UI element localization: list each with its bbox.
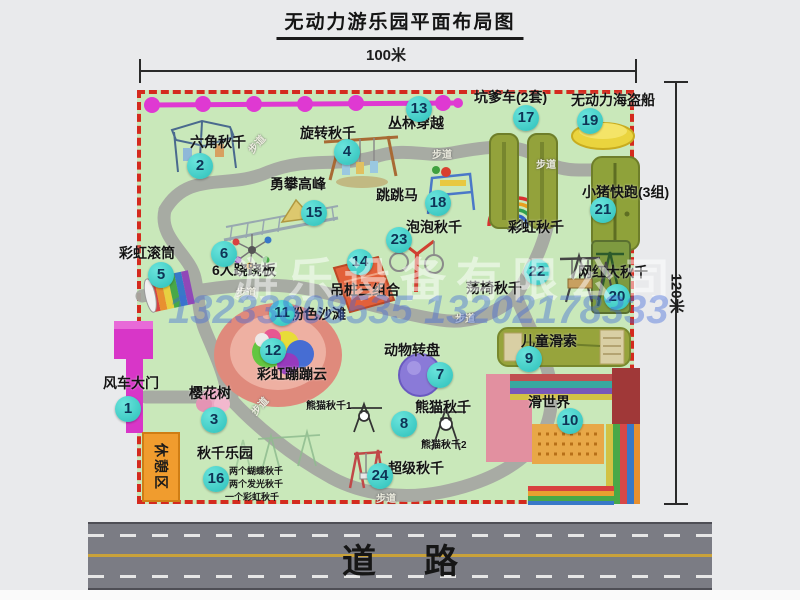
badge-10: 10	[557, 408, 583, 434]
footpath-label-3: 步道	[536, 156, 556, 171]
bottom-margin	[0, 590, 800, 600]
right-dimension-tick-bottom	[664, 503, 688, 505]
label-rainbow-swing: 彩虹秋千	[508, 220, 564, 235]
swing-paradise-note-2: 两个发光秋千	[229, 477, 283, 490]
label-slide-world: 滑世界	[528, 395, 570, 410]
road-label: 道路	[88, 534, 712, 583]
top-dimension-tick-right	[635, 59, 637, 83]
badge-17: 17	[513, 105, 539, 131]
badge-18: 18	[425, 190, 451, 216]
label-bumpy-car: 坑爹车(2套)	[474, 90, 547, 105]
top-dimension-line	[140, 70, 636, 72]
rest-area: 休憩区	[142, 432, 180, 502]
watermark-phone: 13233808535 13202178333	[168, 288, 669, 333]
label-super-swing: 超级秋千	[388, 461, 444, 476]
label-swing-paradise: 秋千乐园	[197, 446, 253, 461]
page-title: 无动力游乐园平面布局图	[276, 7, 523, 40]
badge-16: 16	[203, 466, 229, 492]
badge-21: 21	[590, 197, 616, 223]
badge-13: 13	[406, 96, 432, 122]
swing-paradise-note-1: 两个蝴蝶秋千	[229, 464, 283, 477]
badge-15: 15	[301, 200, 327, 226]
badge-1: 1	[115, 396, 141, 422]
label-pirate-ship: 无动力海盗船	[571, 93, 655, 108]
badge-4: 4	[334, 139, 360, 165]
label-jumping-horse: 跳跳马	[376, 188, 418, 203]
swing-paradise-note-3: 一个彩虹秋千	[225, 490, 279, 503]
label-panda-swing-1: 熊猫秋千1	[306, 401, 352, 412]
badge-8: 8	[391, 411, 417, 437]
label-bubble-swing: 泡泡秋千	[406, 220, 462, 235]
badge-24: 24	[367, 463, 393, 489]
label-rainbow-bounce-cloud: 彩虹蹦蹦云	[257, 367, 327, 382]
badge-3: 3	[201, 407, 227, 433]
label-panda-swing-2: 熊猫秋千2	[421, 440, 467, 451]
footpath-label-2: 步道	[432, 146, 452, 161]
label-cherry-tree: 樱花树	[189, 386, 231, 401]
badge-9: 9	[516, 346, 542, 372]
footpath-label-7: 步道	[376, 490, 396, 505]
top-dimension-tick-left	[139, 59, 141, 83]
road: 道路	[88, 522, 712, 590]
badge-7: 7	[427, 362, 453, 388]
badge-19: 19	[577, 108, 603, 134]
label-panda-swing: 熊猫秋千	[415, 400, 471, 415]
right-dimension-tick-top	[664, 81, 688, 83]
badge-12: 12	[260, 338, 286, 364]
badge-2: 2	[187, 153, 213, 179]
page-background: 无动力游乐园平面布局图 100米 120米	[0, 0, 800, 600]
label-peak-climbing: 勇攀高峰	[270, 177, 326, 192]
label-hexagon-swing: 六角秋千	[190, 135, 246, 150]
badge-5: 5	[148, 262, 174, 288]
label-windmill-gate: 风车大门	[103, 376, 159, 391]
rest-area-label: 休憩区	[151, 443, 171, 491]
label-animal-carousel: 动物转盘	[384, 343, 440, 358]
top-dimension-label: 100米	[366, 44, 406, 65]
label-rainbow-roller: 彩虹滚筒	[119, 246, 175, 261]
